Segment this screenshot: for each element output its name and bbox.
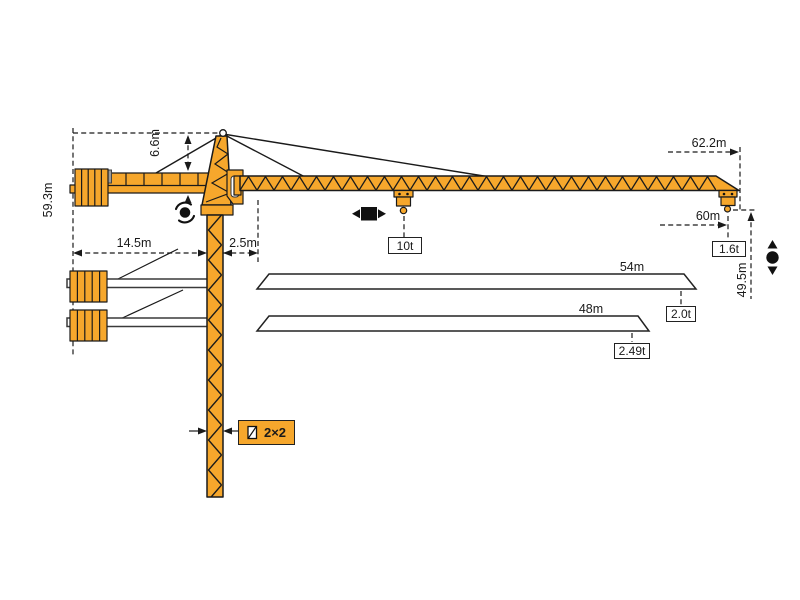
counter-jib [70,169,216,206]
jib-option-48m-label: 48m [579,303,603,316]
max-radius-overall-label: 62.2m [692,137,727,150]
trolley-tip [719,191,737,213]
mast-section-badge: 2×2 [238,420,295,445]
tower-apex-pin [220,130,227,137]
slewing-rotation-icon [176,203,194,223]
hook-height-label: 49.5m [736,263,749,298]
tip-load-54m-badge: 2.0t [666,306,696,322]
tower-crane-diagram: 59.3m 6.6m 14.5m 2.5m 62.2m 60m 49.5m 54… [0,0,800,600]
tower-head-height-label: 6.6m [149,129,162,157]
jib-option-54m-bar [257,274,696,289]
tie-bars [156,134,490,177]
trolley-travel-icon [352,207,386,221]
max-load-badge: 10t [388,237,422,254]
tip-load-62m-badge: 1.6t [712,241,746,257]
hook-mid [400,207,406,213]
jib [234,176,739,195]
hook-tip [725,206,731,212]
counterweight-blocks-option-1 [70,271,107,302]
rear-clearance-label: 2.5m [229,237,257,250]
tower-mast [207,215,223,497]
max-radius-hook-label: 60m [696,210,720,223]
mast-cross-section-icon [247,425,258,440]
counterweight-configurations [67,249,208,341]
jib-option-54m-label: 54m [620,261,644,274]
counter-jib-length-label: 14.5m [117,237,152,250]
mast-section-label: 2×2 [264,425,286,440]
hook-hoist-icon [766,240,778,275]
slewing-platform [201,205,233,215]
crane-drawing-svg [0,0,800,600]
jib-option-bars [257,274,696,331]
counterweight-blocks-option-2 [70,310,107,341]
total-height-label: 59.3m [42,183,55,218]
counterweight [75,169,108,206]
trolley-mid [394,191,413,214]
tip-load-48m-badge: 2.49t [614,343,650,359]
jib-option-48m-bar [257,316,649,331]
